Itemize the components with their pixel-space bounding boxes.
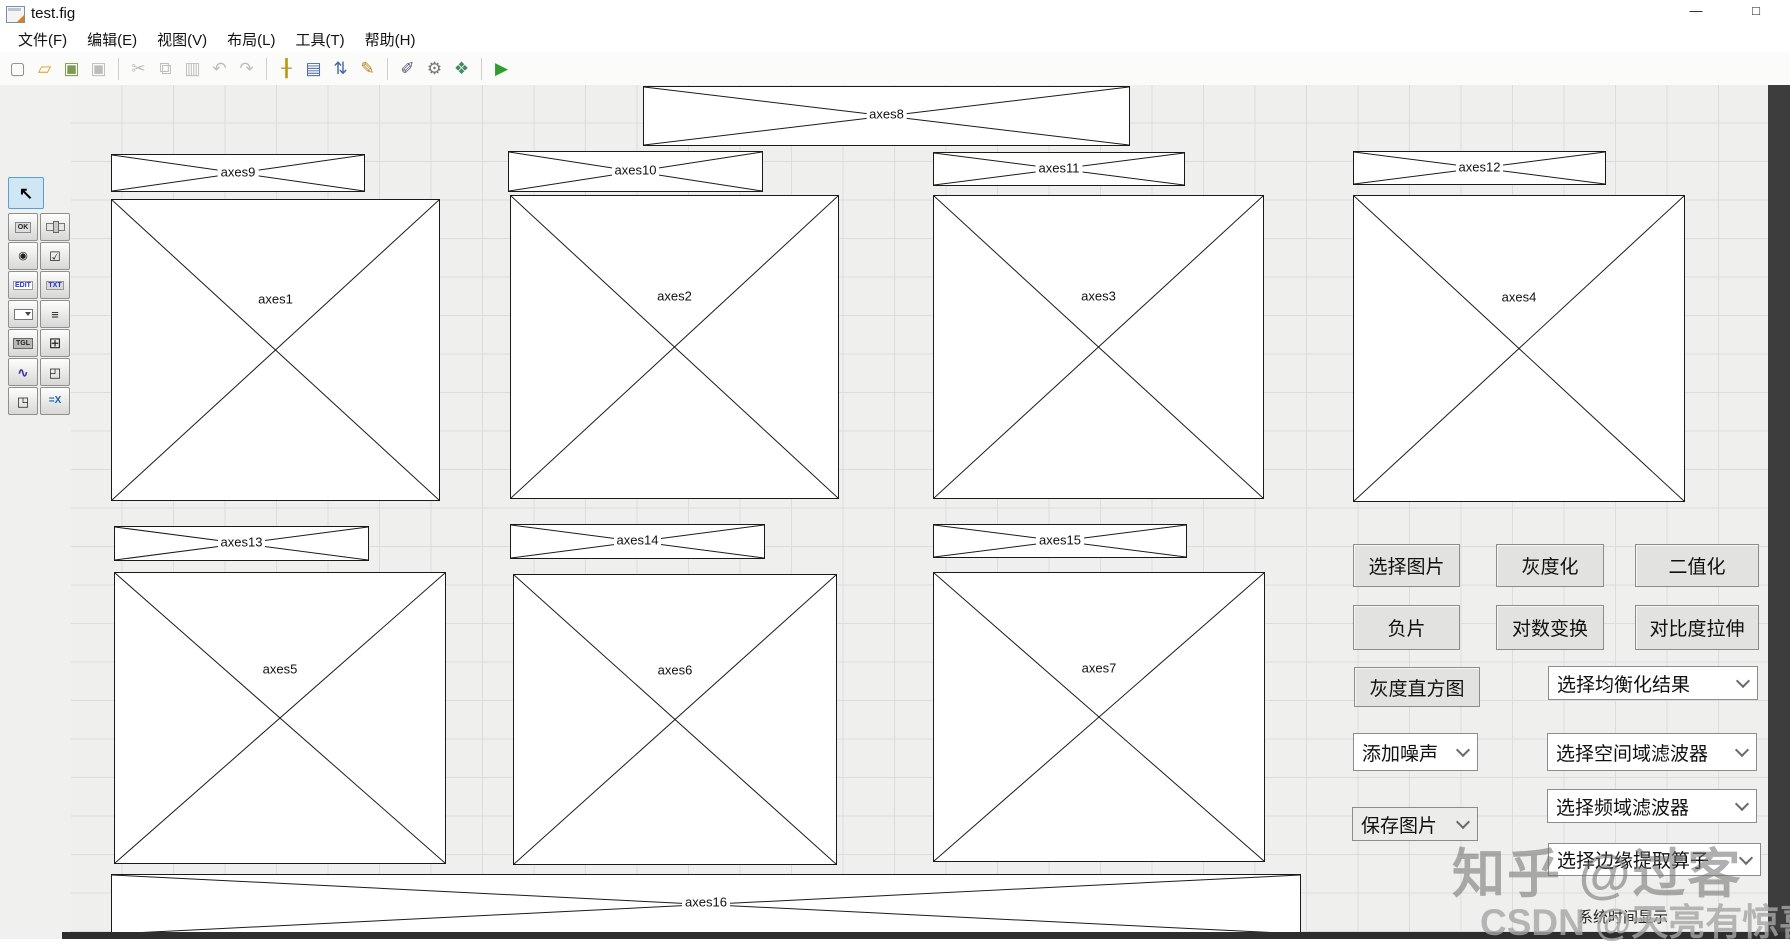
palette-popupmenu-button[interactable] — [8, 300, 38, 328]
palette-panel-button[interactable]: ◰ — [40, 358, 70, 386]
palette-buttongroup-button[interactable]: ◳ — [8, 387, 38, 415]
palette-activex-button[interactable]: =X — [40, 387, 70, 415]
frequency-filter-select[interactable]: 选择频域滤波器 — [1547, 789, 1757, 823]
paste-icon: ▥ — [180, 56, 205, 81]
menu-edit[interactable]: 编辑(E) — [77, 26, 147, 53]
axes12-label: axes12 — [1456, 159, 1504, 174]
spatial-filter-select-value: 选择空间域滤波器 — [1556, 739, 1708, 766]
add-noise-select[interactable]: 添加噪声 — [1353, 733, 1478, 771]
axes3-label: axes3 — [1078, 288, 1119, 303]
figure-file-icon — [6, 6, 25, 23]
axes13-label: axes13 — [218, 535, 266, 550]
save-image-select-value: 保存图片 — [1361, 811, 1437, 838]
save-as-icon: ▣ — [86, 56, 111, 81]
new-file-icon[interactable]: ▢ — [5, 56, 30, 81]
menu-view[interactable]: 视图(V) — [147, 26, 217, 53]
axes2-placeholder[interactable]: axes2 — [510, 195, 839, 499]
palette-select-tool-button[interactable]: ↖ — [8, 177, 44, 209]
menu-help[interactable]: 帮助(H) — [355, 26, 426, 53]
m-file-editor-icon[interactable]: ✐ — [395, 56, 420, 81]
axes5-placeholder[interactable]: axes5 — [114, 572, 446, 864]
palette-checkbox-button[interactable]: ☑ — [40, 242, 70, 270]
axes4-placeholder[interactable]: axes4 — [1353, 195, 1685, 502]
axes15-label: axes15 — [1036, 532, 1084, 547]
toolbar-separator — [387, 58, 388, 80]
undo-icon: ↶ — [207, 56, 232, 81]
save-icon[interactable]: ▣ — [59, 56, 84, 81]
axes15-placeholder[interactable]: axes15 — [933, 524, 1187, 558]
axes10-placeholder[interactable]: axes10 — [508, 151, 763, 192]
binarize-button[interactable]: 二值化 — [1635, 544, 1759, 587]
axes16-label: axes16 — [682, 895, 730, 910]
axes11-placeholder[interactable]: axes11 — [933, 152, 1185, 186]
component-palette: ↖OK◉☑EDITTXT≡TGL⊞∿◰◳=X — [0, 85, 72, 939]
palette-edittext-button[interactable]: EDIT — [8, 271, 38, 299]
redo-icon: ↷ — [234, 56, 259, 81]
chevron-down-icon — [1739, 850, 1753, 864]
menu-bar: 文件(F) 编辑(E) 视图(V) 布局(L) 工具(T) 帮助(H) — [0, 26, 1790, 52]
frequency-filter-select-value: 选择频域滤波器 — [1556, 793, 1689, 820]
axes14-placeholder[interactable]: axes14 — [510, 524, 765, 559]
axes1-label: axes1 — [255, 292, 296, 307]
toolbar-editor-icon[interactable]: ✎ — [355, 56, 380, 81]
axes8-label: axes8 — [866, 106, 907, 121]
axes2-label: axes2 — [654, 288, 695, 303]
table-icon: ⊞ — [49, 336, 62, 351]
axes9-placeholder[interactable]: axes9 — [111, 154, 365, 192]
chevron-down-icon — [1456, 743, 1470, 757]
axes8-placeholder[interactable]: axes8 — [643, 86, 1130, 146]
title-bar: test.fig — □ — [0, 0, 1790, 26]
activex-icon: =X — [49, 396, 62, 406]
object-browser-icon[interactable]: ❖ — [449, 56, 474, 81]
axes11-label: axes11 — [1036, 160, 1083, 175]
layout-canvas[interactable]: axes8axes9axes10axes11axes12axes1axes2ax… — [71, 85, 1768, 939]
desktop-background-right — [1768, 85, 1790, 939]
axes14-label: axes14 — [614, 533, 662, 548]
save-image-select[interactable]: 保存图片 — [1352, 807, 1478, 841]
axes1-placeholder[interactable]: axes1 — [111, 199, 440, 501]
desktop-background-bottom — [62, 932, 1790, 939]
buttongroup-icon: ◳ — [17, 395, 29, 408]
menu-layout[interactable]: 布局(L) — [217, 26, 285, 53]
align-objects-icon[interactable]: ╂ — [274, 56, 299, 81]
equalization-result-select[interactable]: 选择均衡化结果 — [1548, 666, 1758, 700]
axes9-label: axes9 — [218, 164, 259, 179]
edge-operator-select[interactable]: 选择边缘提取算子 — [1548, 843, 1761, 876]
toolbar-separator — [118, 58, 119, 80]
axes6-label: axes6 — [655, 663, 696, 678]
minimize-button[interactable]: — — [1686, 1, 1706, 19]
log-transform-button[interactable]: 对数变换 — [1496, 605, 1604, 650]
tab-order-editor-icon[interactable]: ⇅ — [328, 56, 353, 81]
slider-icon — [46, 223, 65, 231]
run-figure-icon[interactable]: ▶ — [489, 56, 514, 81]
chevron-down-icon — [1735, 743, 1749, 757]
axes10-label: axes10 — [612, 162, 660, 177]
radiobutton-icon: ◉ — [18, 251, 28, 262]
window-title: test.fig — [31, 5, 75, 22]
property-inspector-icon[interactable]: ⚙ — [422, 56, 447, 81]
axes4-label: axes4 — [1499, 289, 1540, 304]
toolbar: ▢▱▣▣✂⧉▥↶↷╂▤⇅✎✐⚙❖▶ — [0, 52, 1790, 86]
axes16-placeholder[interactable]: axes16 — [111, 874, 1301, 935]
panel-icon: ◰ — [49, 366, 61, 379]
palette-slider-button[interactable] — [40, 213, 70, 241]
palette-listbox-button[interactable]: ≡ — [40, 300, 70, 328]
gray-histogram-button[interactable]: 灰度直方图 — [1354, 667, 1480, 707]
listbox-icon: ≡ — [51, 308, 59, 321]
pushbutton-icon: OK — [15, 222, 32, 233]
select-image-button[interactable]: 选择图片 — [1353, 544, 1460, 587]
equalization-result-select-value: 选择均衡化结果 — [1557, 670, 1690, 697]
palette-radiobutton-button[interactable]: ◉ — [8, 242, 38, 270]
add-noise-select-value: 添加噪声 — [1362, 739, 1438, 766]
popupmenu-icon — [14, 309, 33, 320]
axes-icon: ∿ — [18, 366, 29, 379]
grayscale-button[interactable]: 灰度化 — [1496, 544, 1604, 587]
menu-file[interactable]: 文件(F) — [8, 26, 77, 53]
chevron-down-icon — [1736, 674, 1750, 688]
chevron-down-icon — [1456, 815, 1470, 829]
palette-axes-button[interactable]: ∿ — [8, 358, 38, 386]
axes13-placeholder[interactable]: axes13 — [114, 526, 369, 561]
open-file-icon[interactable]: ▱ — [32, 56, 57, 81]
chevron-down-icon — [1735, 797, 1749, 811]
palette-table-button[interactable]: ⊞ — [40, 329, 70, 357]
axes7-label: axes7 — [1079, 661, 1120, 676]
palette-togglebutton-button[interactable]: TGL — [8, 329, 38, 357]
checkbox-icon: ☑ — [49, 250, 61, 263]
axes3-placeholder[interactable]: axes3 — [933, 195, 1264, 499]
axes6-placeholder[interactable]: axes6 — [513, 574, 837, 865]
select-tool-icon: ↖ — [19, 185, 33, 202]
toolbar-separator — [481, 58, 482, 80]
spatial-filter-select[interactable]: 选择空间域滤波器 — [1547, 733, 1757, 771]
statictext-icon: TXT — [46, 281, 63, 290]
menu-tools[interactable]: 工具(T) — [286, 26, 355, 53]
axes7-placeholder[interactable]: axes7 — [933, 572, 1265, 862]
axes12-placeholder[interactable]: axes12 — [1353, 151, 1606, 185]
axes5-label: axes5 — [260, 661, 301, 676]
contrast-stretch-button[interactable]: 对比度拉伸 — [1635, 605, 1759, 650]
palette-pushbutton-button[interactable]: OK — [8, 213, 38, 241]
maximize-button[interactable]: □ — [1746, 1, 1766, 19]
palette-statictext-button[interactable]: TXT — [40, 271, 70, 299]
togglebutton-icon: TGL — [13, 338, 33, 349]
edittext-icon: EDIT — [13, 281, 33, 290]
cut-icon: ✂ — [126, 56, 151, 81]
copy-icon: ⧉ — [153, 56, 178, 81]
menu-editor-icon[interactable]: ▤ — [301, 56, 326, 81]
toolbar-separator — [266, 58, 267, 80]
edge-operator-select-value: 选择边缘提取算子 — [1557, 846, 1709, 873]
negative-button[interactable]: 负片 — [1353, 605, 1460, 650]
system-time-label: 系统时间显示 — [1578, 906, 1668, 927]
